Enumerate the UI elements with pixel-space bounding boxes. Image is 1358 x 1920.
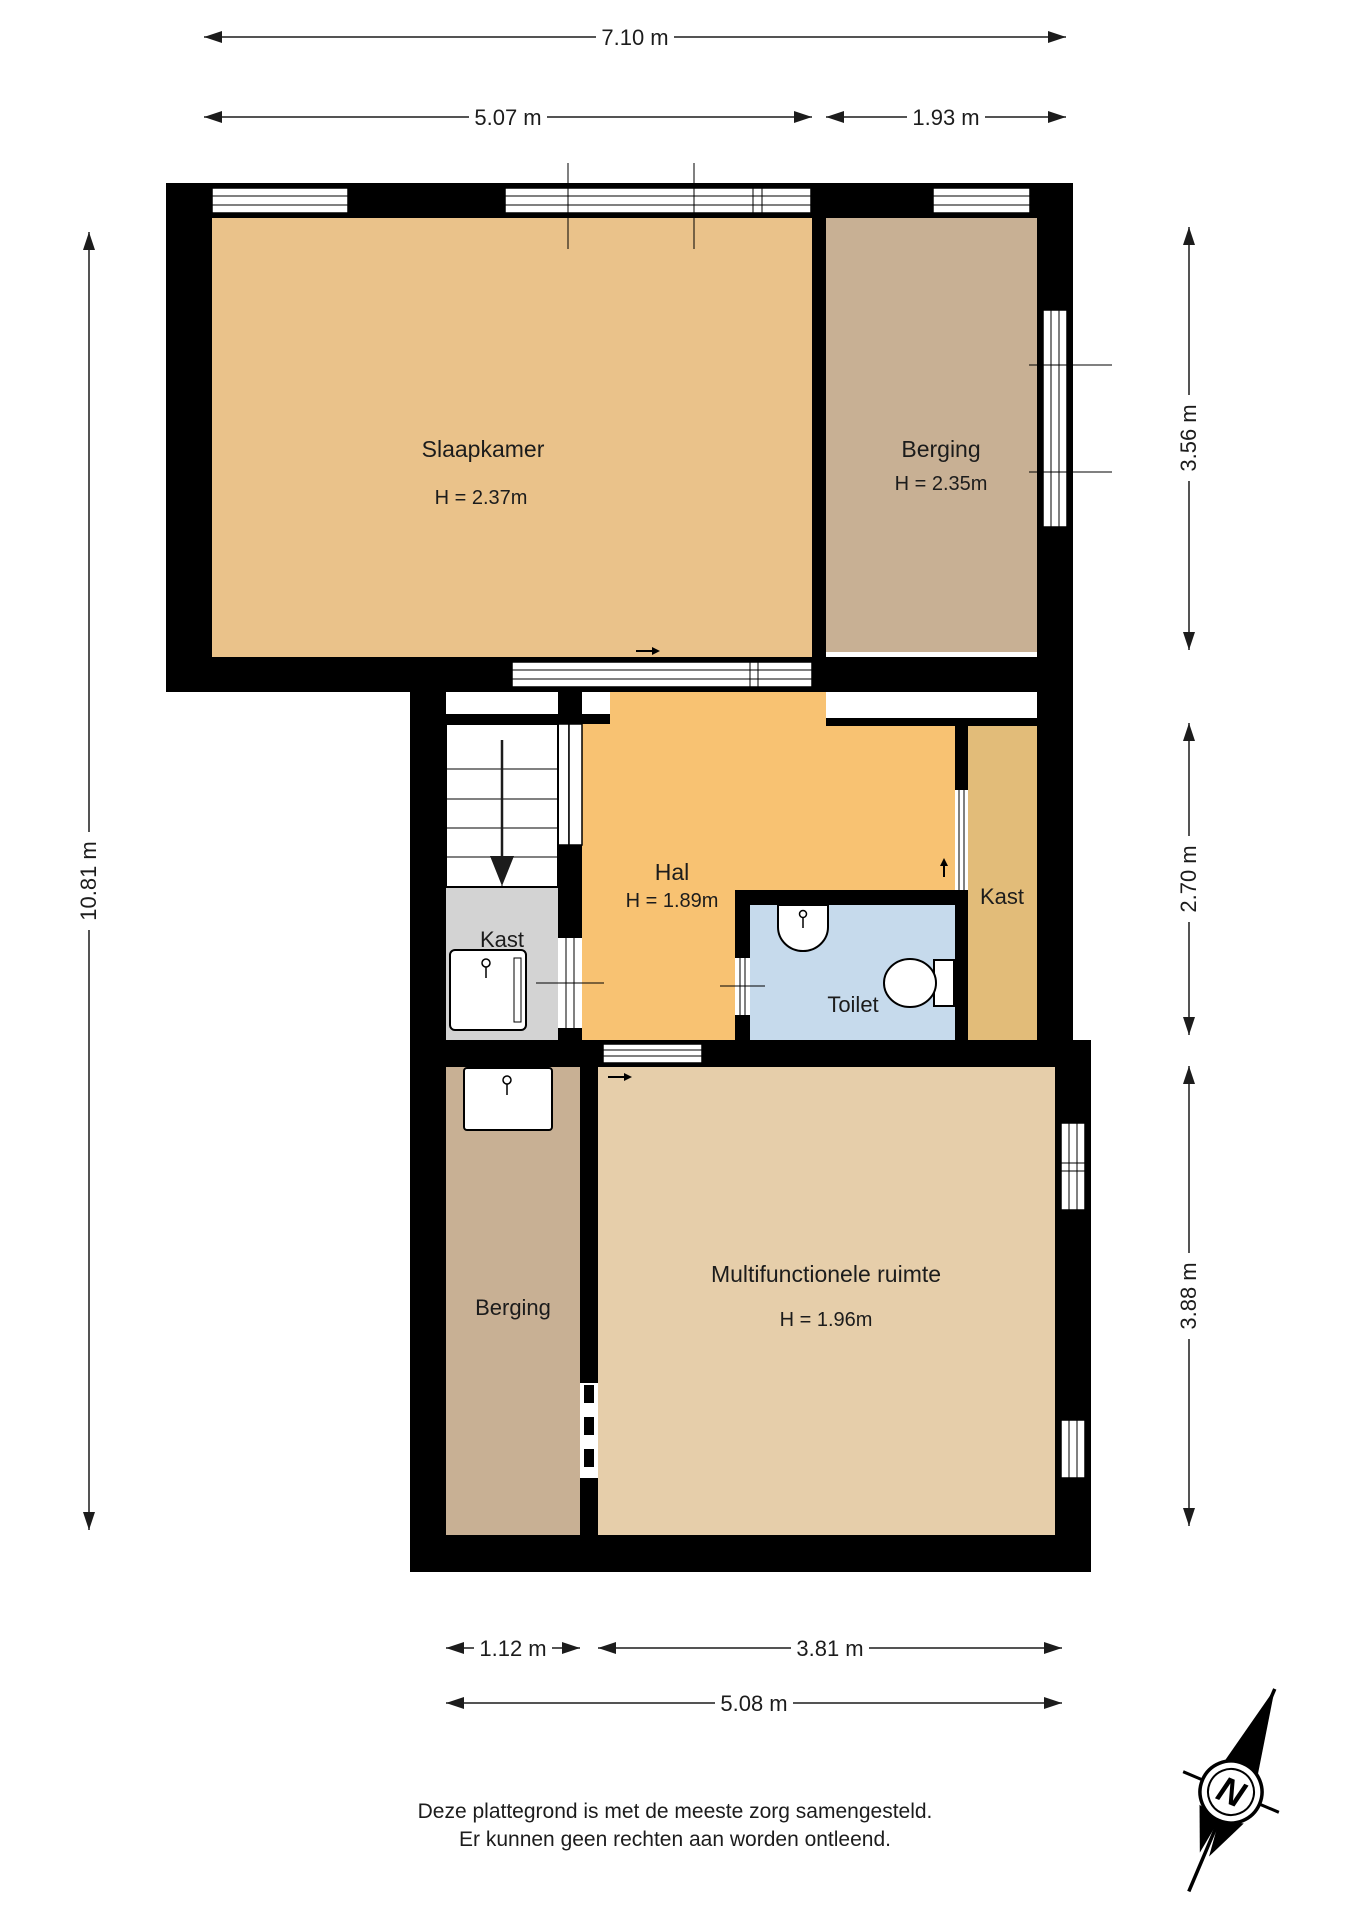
dimension-right-top-label: 3.56 m xyxy=(1176,404,1201,471)
dimension-top-right: 1.93 m xyxy=(826,102,1066,130)
wall-left-upper xyxy=(166,183,212,692)
washing-machine-icon xyxy=(464,1068,552,1130)
dimension-top-left: 5.07 m xyxy=(204,102,812,130)
room-kast-left-label: Kast xyxy=(480,927,524,952)
dimension-top-right-label: 1.93 m xyxy=(912,105,979,130)
window-berging-top xyxy=(933,188,1030,213)
window-slaapkamer-right xyxy=(505,188,811,213)
room-berging-bottom-label: Berging xyxy=(475,1295,551,1320)
room-kast-right-label: Kast xyxy=(980,884,1024,909)
dimension-left-total: 10.81 m xyxy=(75,232,103,1530)
dimension-bottom-total-label: 5.08 m xyxy=(720,1691,787,1716)
room-berging-top-floor xyxy=(826,218,1037,652)
dimension-top-left-label: 5.07 m xyxy=(474,105,541,130)
room-toilet-label: Toilet xyxy=(827,992,878,1017)
room-kast-right-floor xyxy=(968,726,1037,1040)
door-hal-kast-right xyxy=(955,790,968,890)
room-floors xyxy=(212,218,1055,1535)
dimension-top-total: 7.10 m xyxy=(204,22,1066,50)
sink-icon xyxy=(778,905,828,951)
dimension-right-middle: 2.70 m xyxy=(1175,723,1203,1035)
stairwell-door-panels xyxy=(558,724,582,845)
stairs xyxy=(446,724,558,887)
dimension-bottom-left-label: 1.12 m xyxy=(479,1636,546,1661)
wall-toilet-top xyxy=(735,890,968,905)
room-hal-height-label: H = 1.89m xyxy=(626,890,719,912)
footer-disclaimer-line1: Deze plattegrond is met de meeste zorg s… xyxy=(418,1800,933,1823)
opening-berging-multi xyxy=(580,1383,598,1478)
room-multifunctionele-ruimte-label: Multifunctionele ruimte xyxy=(711,1261,941,1287)
dimension-bottom-left: 1.12 m xyxy=(446,1633,580,1661)
wall-left-lower xyxy=(410,657,446,1572)
dimension-bottom-right: 3.81 m xyxy=(598,1633,1062,1661)
footer-disclaimer-line2: Er kunnen geen rechten aan worden ontlee… xyxy=(459,1828,891,1851)
room-berging-top-label: Berging xyxy=(901,436,980,462)
window-multi-right-lower xyxy=(1061,1420,1085,1478)
wall-middle-bottom xyxy=(410,1040,1073,1067)
sliding-door-slaapkamer-hal xyxy=(512,662,812,687)
window-multi-right-upper xyxy=(1061,1123,1085,1210)
wall-right-lower xyxy=(1055,1040,1091,1572)
wall-stair-landing xyxy=(446,714,610,724)
room-slaapkamer-height-label: H = 2.37m xyxy=(435,487,528,509)
room-berging-top-height-label: H = 2.35m xyxy=(895,473,988,495)
floor-plan: Slaapkamer H = 2.37m Berging H = 2.35m H… xyxy=(0,0,1358,1920)
room-slaapkamer-label: Slaapkamer xyxy=(422,436,545,462)
dimension-right-middle-label: 2.70 m xyxy=(1176,845,1201,912)
wall-kast-right-top xyxy=(826,718,1037,726)
wall-toilet-right xyxy=(955,890,968,1040)
dimension-right-bottom: 3.88 m xyxy=(1175,1066,1203,1526)
stair-landing xyxy=(446,692,610,714)
dimension-bottom-total: 5.08 m xyxy=(446,1688,1062,1716)
room-hal-label: Hal xyxy=(655,859,690,885)
washing-machine-icon xyxy=(450,950,526,1030)
wall-slaapkamer-berging xyxy=(812,218,826,657)
ledge-under-berging xyxy=(826,692,1037,718)
footer-disclaimer: Deze plattegrond is met de meeste zorg s… xyxy=(418,1800,933,1851)
window-slaapkamer-left xyxy=(212,188,348,213)
dimension-top-total-label: 7.10 m xyxy=(601,25,668,50)
dimension-right-bottom-label: 3.88 m xyxy=(1176,1262,1201,1329)
room-multifunctionele-ruimte-height-label: H = 1.96m xyxy=(780,1309,873,1331)
dimension-left-total-label: 10.81 m xyxy=(76,841,101,921)
toilet-icon xyxy=(884,959,954,1007)
sliding-door-hal-multi xyxy=(603,1044,702,1063)
compass-rose-icon: N xyxy=(1141,1669,1323,1912)
dimension-right-top: 3.56 m xyxy=(1175,227,1203,650)
room-multifunctionele-ruimte-floor xyxy=(598,1067,1055,1535)
wall-bottom xyxy=(410,1535,1091,1572)
dimension-bottom-right-label: 3.81 m xyxy=(796,1636,863,1661)
